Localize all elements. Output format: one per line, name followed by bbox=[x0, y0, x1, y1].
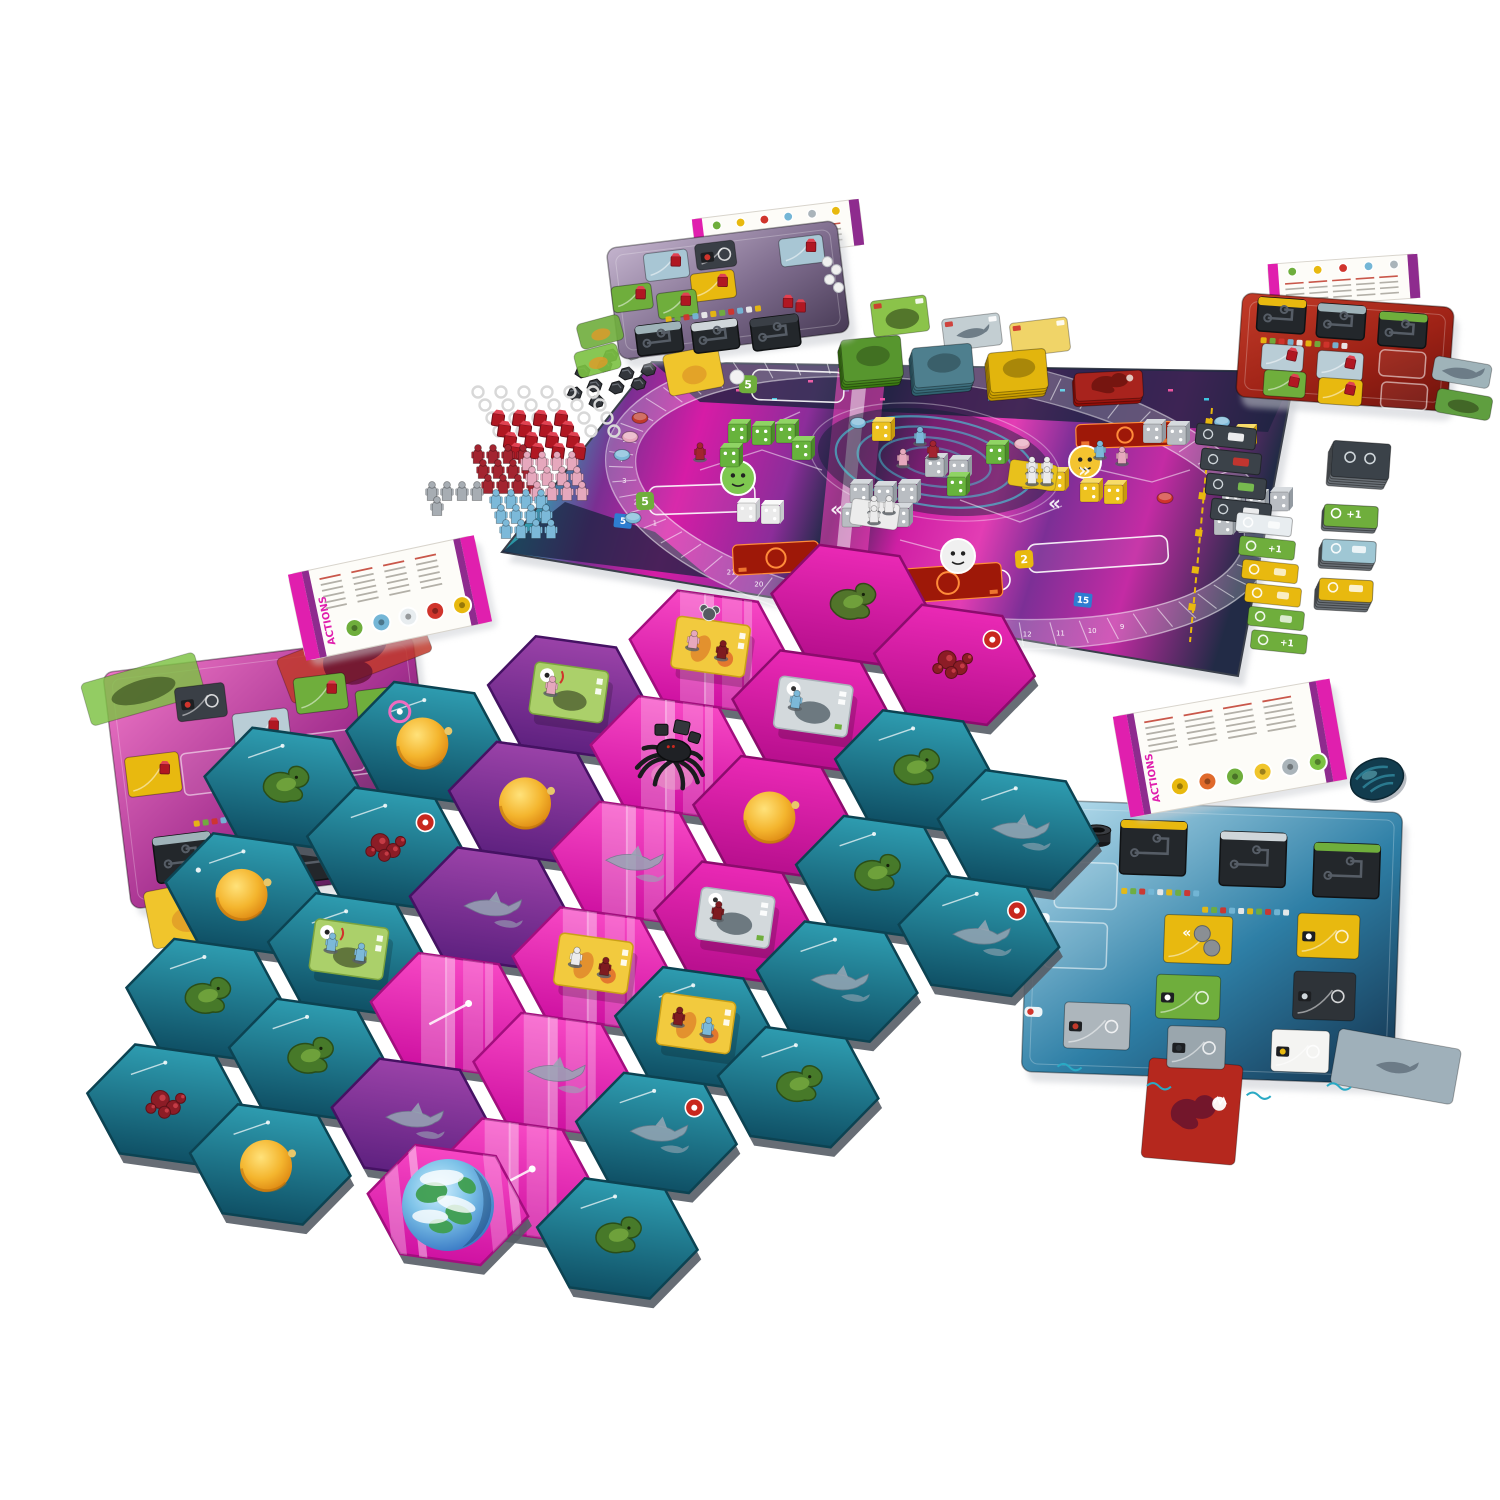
die-green[interactable] bbox=[752, 421, 775, 445]
die-green[interactable] bbox=[728, 419, 751, 443]
track-disc[interactable] bbox=[1014, 439, 1030, 450]
die-green[interactable] bbox=[947, 472, 970, 496]
black-gem[interactable] bbox=[609, 381, 624, 394]
action-tile[interactable] bbox=[174, 682, 228, 722]
svg-text:15: 15 bbox=[1076, 595, 1090, 606]
action-tile[interactable] bbox=[293, 672, 349, 714]
planet-token[interactable] bbox=[1345, 751, 1412, 810]
reward-tile[interactable] bbox=[1247, 606, 1305, 631]
player-card-shark[interactable] bbox=[1330, 1028, 1462, 1105]
action-tile[interactable] bbox=[1167, 1026, 1226, 1070]
svg-text:9: 9 bbox=[1120, 623, 1124, 631]
round-planet-token[interactable] bbox=[1345, 751, 1412, 810]
svg-text:«: « bbox=[830, 497, 843, 521]
die-green[interactable] bbox=[720, 443, 743, 467]
photo-stage: 9101112131415161718192021123451555523««»… bbox=[0, 0, 1500, 1500]
action-tile[interactable]: « bbox=[1163, 914, 1233, 964]
circuit-module-tile[interactable] bbox=[750, 314, 802, 352]
empty-tile-slot bbox=[1380, 382, 1428, 411]
pawn-grey[interactable] bbox=[441, 481, 454, 500]
pawn-grey[interactable] bbox=[456, 481, 469, 500]
red-crystal[interactable] bbox=[671, 253, 681, 266]
svg-text:3: 3 bbox=[622, 477, 626, 485]
die-grey[interactable] bbox=[1143, 419, 1166, 443]
red-deck[interactable] bbox=[1072, 370, 1144, 407]
red-crystal[interactable] bbox=[269, 717, 279, 730]
die-green[interactable] bbox=[986, 440, 1009, 464]
action-tile[interactable] bbox=[1063, 1002, 1131, 1050]
blue-tile-stack[interactable] bbox=[1318, 539, 1376, 571]
svg-text:«: « bbox=[1182, 925, 1192, 941]
red-crystal[interactable] bbox=[718, 274, 728, 287]
tile-stacks[interactable]: +1 bbox=[1314, 440, 1391, 612]
player-card-plain[interactable] bbox=[573, 342, 622, 379]
yellow-tile-stack[interactable] bbox=[1314, 578, 1374, 613]
die-grey[interactable] bbox=[1270, 487, 1293, 511]
circuit-module-tile[interactable] bbox=[635, 321, 684, 356]
svg-text:10: 10 bbox=[1088, 627, 1097, 635]
die-white[interactable] bbox=[737, 498, 760, 522]
die-grey[interactable] bbox=[898, 479, 921, 503]
action-tile[interactable] bbox=[643, 249, 690, 282]
action-tile[interactable] bbox=[611, 282, 654, 313]
red-crystal[interactable] bbox=[681, 293, 691, 306]
action-tile[interactable] bbox=[1317, 377, 1363, 406]
pink-pawns-pool[interactable] bbox=[521, 451, 589, 500]
slot-badge-2: 2 bbox=[1015, 550, 1034, 569]
red-crystal[interactable] bbox=[160, 761, 170, 774]
action-tile[interactable] bbox=[124, 751, 182, 797]
exploration-card-yellow[interactable] bbox=[552, 933, 640, 1006]
exploration-card-grey[interactable] bbox=[693, 887, 781, 960]
actions-reference-card-right[interactable]: ACTIONS bbox=[1113, 678, 1354, 824]
action-tile[interactable] bbox=[1316, 350, 1364, 381]
svg-text:2: 2 bbox=[1020, 553, 1029, 567]
track-disc[interactable] bbox=[632, 413, 648, 424]
circuit-module-tile[interactable] bbox=[1219, 831, 1287, 887]
svg-text:«: « bbox=[1048, 491, 1061, 515]
red-crystal[interactable] bbox=[796, 299, 806, 312]
action-tile[interactable] bbox=[1261, 343, 1305, 372]
exploration-card-yellow[interactable] bbox=[654, 992, 742, 1065]
circuit-module-tile[interactable] bbox=[1378, 311, 1428, 348]
track-disc[interactable] bbox=[614, 450, 630, 461]
svg-text:1: 1 bbox=[653, 520, 657, 528]
empty-tile-slot bbox=[1378, 349, 1426, 378]
board-slot: 5 bbox=[739, 369, 845, 403]
die-yellow[interactable] bbox=[1104, 480, 1127, 504]
track-disc[interactable] bbox=[850, 418, 866, 429]
ghost-face-icon bbox=[941, 539, 975, 573]
blue-pawns-pool[interactable] bbox=[490, 489, 558, 538]
action-tile[interactable] bbox=[694, 240, 737, 271]
action-tile[interactable] bbox=[778, 234, 825, 267]
edge-pill-icon bbox=[1024, 1007, 1042, 1018]
action-tile[interactable] bbox=[1155, 974, 1220, 1020]
track-disc[interactable] bbox=[1157, 493, 1173, 504]
svg-text:+1: +1 bbox=[1279, 638, 1294, 649]
die-grey[interactable] bbox=[1167, 421, 1190, 445]
green-tile-stack[interactable]: +1 bbox=[1321, 504, 1378, 534]
black-gem[interactable] bbox=[619, 367, 634, 380]
red-crystal[interactable] bbox=[806, 239, 816, 252]
svg-text:+1: +1 bbox=[1346, 509, 1362, 521]
svg-text:20: 20 bbox=[754, 581, 763, 589]
action-tile[interactable] bbox=[1263, 369, 1307, 398]
die-green[interactable] bbox=[792, 436, 815, 460]
exploration-card-green[interactable] bbox=[307, 918, 395, 991]
track-disc[interactable] bbox=[625, 513, 641, 524]
circuit-module-tile[interactable] bbox=[1313, 843, 1381, 899]
top-right-player-board bbox=[1235, 293, 1499, 425]
action-tile[interactable] bbox=[1271, 1029, 1330, 1073]
reward-tile[interactable]: +1 bbox=[1250, 630, 1308, 655]
circuit-module-tile[interactable] bbox=[1316, 303, 1366, 340]
action-tile[interactable] bbox=[1292, 971, 1356, 1021]
svg-text:+1: +1 bbox=[1267, 544, 1282, 555]
die-white[interactable] bbox=[761, 500, 784, 524]
dark-tile-stack[interactable] bbox=[1326, 440, 1391, 490]
svg-text:12: 12 bbox=[1023, 630, 1032, 638]
player-card-dragon[interactable] bbox=[1141, 1058, 1243, 1166]
circuit-module-tile[interactable] bbox=[1119, 820, 1187, 876]
exploration-card-green[interactable] bbox=[527, 662, 615, 735]
red-crystal[interactable] bbox=[783, 295, 793, 308]
circuit-module-tile[interactable] bbox=[691, 318, 740, 353]
track-disc[interactable] bbox=[622, 432, 638, 443]
slot-badge-5: 5 bbox=[636, 492, 655, 511]
red-crystal[interactable] bbox=[327, 680, 337, 693]
svg-text:11: 11 bbox=[1056, 630, 1065, 638]
action-tile[interactable] bbox=[1297, 913, 1360, 959]
board-game-scene: 9101112131415161718192021123451555523««»… bbox=[0, 0, 1500, 1500]
grey-pawns-pool[interactable] bbox=[426, 481, 484, 515]
svg-text:»: » bbox=[1078, 458, 1091, 482]
actions-reference-card-left[interactable]: ACTIONS bbox=[288, 534, 498, 667]
svg-text:5: 5 bbox=[641, 495, 649, 508]
red-crystal[interactable] bbox=[636, 286, 646, 299]
track-tag-15: 15 bbox=[1073, 592, 1092, 608]
die-yellow[interactable] bbox=[872, 417, 895, 441]
exploration-card-grey[interactable] bbox=[772, 676, 860, 749]
svg-text:5: 5 bbox=[744, 378, 752, 391]
circuit-module-tile[interactable] bbox=[1256, 297, 1306, 334]
